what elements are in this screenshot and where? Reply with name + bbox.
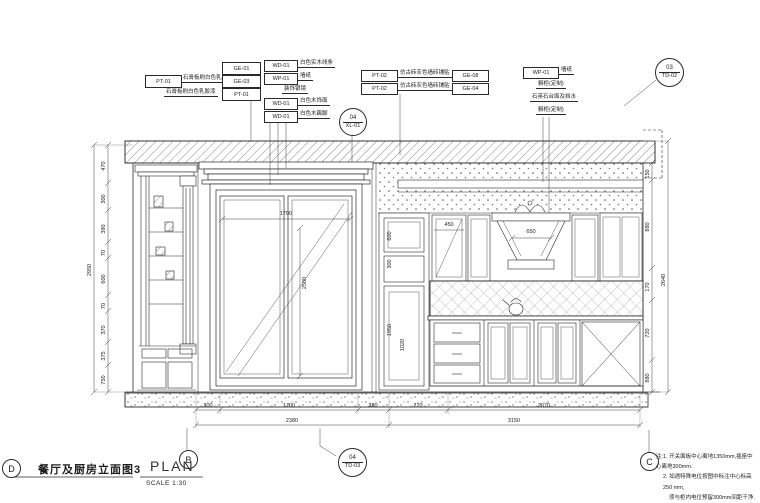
- countertop: [428, 316, 643, 320]
- dim-label: 1950: [387, 324, 393, 336]
- dim-label: 170: [645, 282, 651, 291]
- finish-tag-ge08: GE-08: [452, 70, 489, 82]
- finish-text-wd01-2: 白色木饰面: [298, 97, 330, 106]
- detail-number: 03: [659, 65, 681, 73]
- drawing-title: 餐厅及厨房立面图3: [38, 461, 141, 477]
- dim-label: 1700: [283, 403, 295, 409]
- dim-label: 1020: [400, 339, 406, 351]
- plan-label: PLAN: [150, 458, 195, 474]
- dim-label: 600: [387, 231, 393, 240]
- finish-text-cabinet-2: 橱柜(定制): [536, 106, 566, 115]
- finish-text-cabinet-1: 橱柜(定制): [536, 80, 566, 89]
- dim-door-height: 2500: [302, 277, 308, 289]
- dim-label: 300: [101, 194, 107, 203]
- backsplash-tile: [430, 281, 643, 316]
- china-cabinet: [135, 165, 197, 390]
- finish-text-wp01-1: 墙纸: [298, 72, 313, 81]
- finish-tag-wp01-2: WP-01: [523, 67, 559, 79]
- dim-label: 300: [203, 403, 212, 409]
- finish-text-wallpaper: 墙纸: [559, 66, 574, 75]
- detail-sheet: XL-01: [346, 123, 361, 130]
- left-dim-chain: [91, 142, 133, 395]
- dim-label: 3150: [508, 418, 520, 424]
- dim-label: 470: [101, 161, 107, 170]
- kitchen-base-cabinets: [430, 320, 643, 386]
- sliding-door: [199, 162, 373, 390]
- detail-bubble-topright: 03 TD-02: [655, 58, 684, 87]
- dim-label: 720: [413, 403, 422, 409]
- dim-label: 150: [645, 169, 651, 178]
- finish-text-pt02-1: 仿古砖灰色墙砖铺贴: [398, 69, 452, 78]
- dim-total-right: 2640: [661, 274, 667, 286]
- finish-text-wd01-1: 白色实木线条: [298, 59, 335, 68]
- dim-label: 2070: [538, 403, 550, 409]
- dim-label: 390: [101, 224, 107, 233]
- dim-cab-width: 450: [444, 222, 453, 228]
- finish-tag-ge03: GE-03: [222, 75, 261, 88]
- dim-label: 370: [101, 325, 107, 334]
- finish-text-pt02-2: 仿古砖灰色墙砖铺贴: [398, 82, 452, 91]
- cad-elevation-sheet: GE-01 PT-01 石膏板刷白色乳胶漆 GE-03 石膏板刷白色乳胶漆 PT…: [0, 0, 760, 503]
- detail-sheet: TD-02: [662, 73, 677, 80]
- dim-total-left: 2950: [87, 264, 93, 276]
- detail-bubble-bottom: 04 TD-03: [338, 448, 367, 477]
- dim-label: 600: [101, 274, 107, 283]
- grid-bubble-d: D: [2, 459, 21, 478]
- dim-label: 750: [101, 375, 107, 384]
- dim-hood-width: 650: [526, 229, 535, 235]
- dim-label: 375: [101, 351, 107, 360]
- finish-tag-ge04: GE-04: [452, 83, 489, 95]
- dim-door-width: 1700: [280, 211, 292, 217]
- dim-label: 300: [387, 259, 393, 268]
- finish-tag-pt02-2: PT-02: [361, 83, 398, 95]
- finish-text-mirror: 装饰银镜: [282, 85, 308, 94]
- note-line: 注:1. 开关面板中心离地1350mm,插座中心离地300mm.: [656, 452, 758, 472]
- finish-tag-wd01-1: WD-01: [264, 60, 298, 72]
- dim-label: 70: [101, 303, 107, 309]
- finish-tag-wd01-3: WD-01: [264, 111, 298, 123]
- dim-label: 880: [645, 222, 651, 231]
- note-line: 须与柜内电位预留300mm间距干净.: [656, 493, 758, 503]
- note-line: 2. 如遇特殊电位按图中标注中心标高250 mm,: [656, 472, 758, 492]
- detail-bubble-mid: 04 XL-01: [339, 108, 367, 136]
- detail-number: 04: [342, 455, 364, 463]
- dim-label: 720: [645, 328, 651, 337]
- ceiling-slab-hatch: [125, 141, 655, 163]
- finish-tag-wd01-2: WD-01: [264, 98, 298, 110]
- scale-label: SCALE 1:30: [146, 480, 187, 487]
- detail-sheet: TD-03: [345, 463, 360, 470]
- finish-text-wd01-3: 白色木踢脚: [298, 110, 330, 119]
- finish-tag-pt01-b: PT-01: [222, 88, 261, 101]
- dim-label: 2380: [286, 418, 298, 424]
- detail-number: 04: [343, 115, 364, 123]
- general-notes: 注:1. 开关面板中心离地1350mm,插座中心离地300mm. 2. 如遇特殊…: [656, 452, 758, 503]
- finish-tag-wp01-1: WP-01: [264, 73, 298, 85]
- finish-text-countertop: 石英石台面及挡水: [530, 93, 578, 102]
- finish-text-row2: 石膏板刷白色乳胶漆: [164, 88, 218, 97]
- finish-tag-pt02-1: PT-02: [361, 70, 398, 82]
- range-hood: [492, 213, 570, 269]
- dim-label: 380: [368, 403, 377, 409]
- dim-label: 70: [101, 250, 107, 256]
- finish-tag-pt01: PT-01: [145, 75, 182, 88]
- dim-label: 880: [645, 373, 651, 382]
